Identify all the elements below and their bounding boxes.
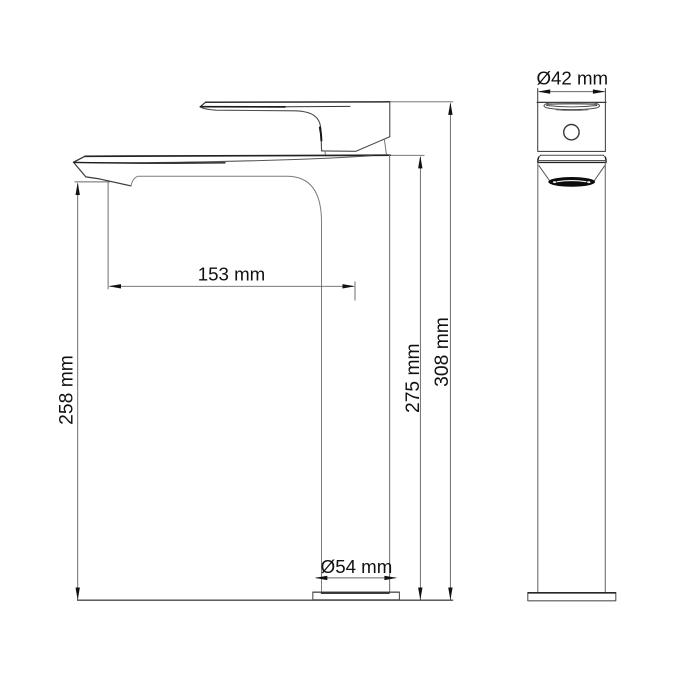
- svg-text:Ø42 mm: Ø42 mm: [536, 68, 608, 89]
- svg-text:Ø54 mm: Ø54 mm: [321, 556, 393, 577]
- svg-text:258 mm: 258 mm: [56, 355, 77, 425]
- svg-text:308 mm: 308 mm: [432, 317, 453, 387]
- svg-text:275 mm: 275 mm: [403, 343, 424, 413]
- svg-text:153 mm: 153 mm: [198, 264, 266, 285]
